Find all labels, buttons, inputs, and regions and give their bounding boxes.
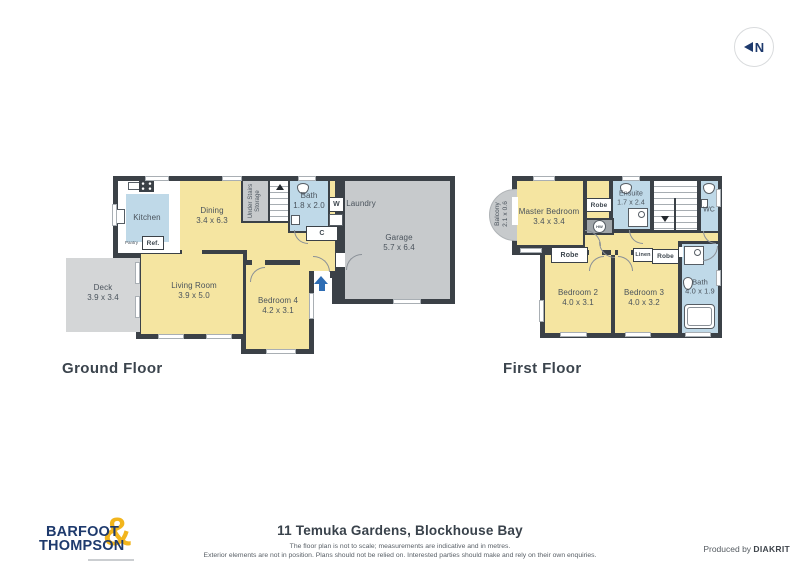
room-label-living: Living Room3.9 x 5.0: [171, 281, 217, 301]
pantry-label: Pantry: [125, 240, 138, 245]
window: [716, 189, 721, 207]
room-label-wc: WC: [703, 207, 715, 216]
north-label: N: [755, 40, 764, 55]
room-label-deck: Deck3.9 x 3.4: [87, 283, 119, 303]
window: [539, 300, 544, 322]
robe-master-box: Robe: [586, 198, 612, 212]
window: [520, 248, 542, 253]
robe-bed3-box: Robe: [652, 249, 679, 264]
north-compass: N: [734, 27, 774, 67]
door-gap-bath: [679, 247, 683, 257]
room-label-bedroom2: Bedroom 24.0 x 3.1: [558, 288, 598, 308]
room-label-bedroom3: Bedroom 34.0 x 3.2: [624, 288, 664, 308]
first-floor-title: First Floor: [503, 360, 582, 377]
room-label-bath-ff: Bath4.0 x 1.9: [685, 278, 715, 297]
window: [222, 176, 242, 181]
door-gap-garage: [336, 253, 345, 267]
linen-box: Linen: [633, 248, 653, 262]
room-label-bath-gf: Bath1.8 x 2.0: [293, 191, 325, 211]
bathtub-icon: [684, 304, 715, 329]
room-label-dining: Dining3.4 x 6.3: [196, 206, 228, 226]
laundry-tub-icon: [329, 214, 343, 226]
hw-icon: HW: [593, 220, 606, 233]
shower-icon: [628, 208, 648, 227]
stove-icon: [139, 180, 154, 192]
window: [112, 204, 117, 226]
ground-floor-title: Ground Floor: [62, 360, 163, 377]
window: [266, 349, 296, 354]
window: [622, 176, 640, 181]
room-label-laundry: Laundry: [346, 199, 376, 209]
north-arrow-icon: [744, 42, 753, 52]
washing-machine-box: W: [329, 197, 344, 212]
robe-bed2-box: Robe: [551, 247, 588, 263]
room-label-master: Master Bedroom3.4 x 3.4: [519, 207, 580, 227]
room-label-garage: Garage5.7 x 6.4: [383, 233, 415, 253]
basin-icon: [291, 215, 300, 225]
shower-icon: [684, 246, 704, 265]
entry-arrow-icon: [314, 276, 330, 293]
stairs-up-arrow-icon: [276, 184, 284, 190]
window: [309, 293, 314, 319]
stairs-divider: [674, 198, 676, 230]
window: [685, 332, 711, 337]
brand-tagline: [88, 559, 134, 561]
window: [625, 332, 651, 337]
window: [716, 270, 721, 286]
room-label-balcony: Balcony2.1 x 0.6: [494, 189, 510, 239]
produced-by: Produced by DIAKRIT: [600, 544, 790, 554]
room-label-kitchen: Kitchen: [133, 213, 160, 223]
window: [158, 334, 184, 339]
window: [206, 334, 232, 339]
producer-name: DIAKRIT: [753, 544, 790, 554]
room-label-ensuite: Ensuite1.7 x 2.4: [617, 190, 645, 208]
cupboard-box: C: [306, 226, 338, 241]
door-gap-balcony: [512, 197, 518, 225]
stairs-down-arrow-icon: [661, 216, 669, 222]
window: [145, 176, 169, 181]
room-label-storage: Under Stairs Storage: [248, 181, 262, 221]
window: [533, 176, 555, 181]
property-address: 11 Temuka Gardens, Blockhouse Bay: [0, 523, 800, 538]
window: [135, 262, 140, 284]
window: [560, 332, 587, 337]
window: [298, 176, 316, 181]
fridge-box: Ref.: [142, 236, 164, 250]
window: [135, 296, 140, 318]
opening-bedroom4: [252, 260, 265, 266]
window: [393, 299, 421, 304]
room-label-bedroom4: Bedroom 44.2 x 3.1: [258, 296, 298, 316]
